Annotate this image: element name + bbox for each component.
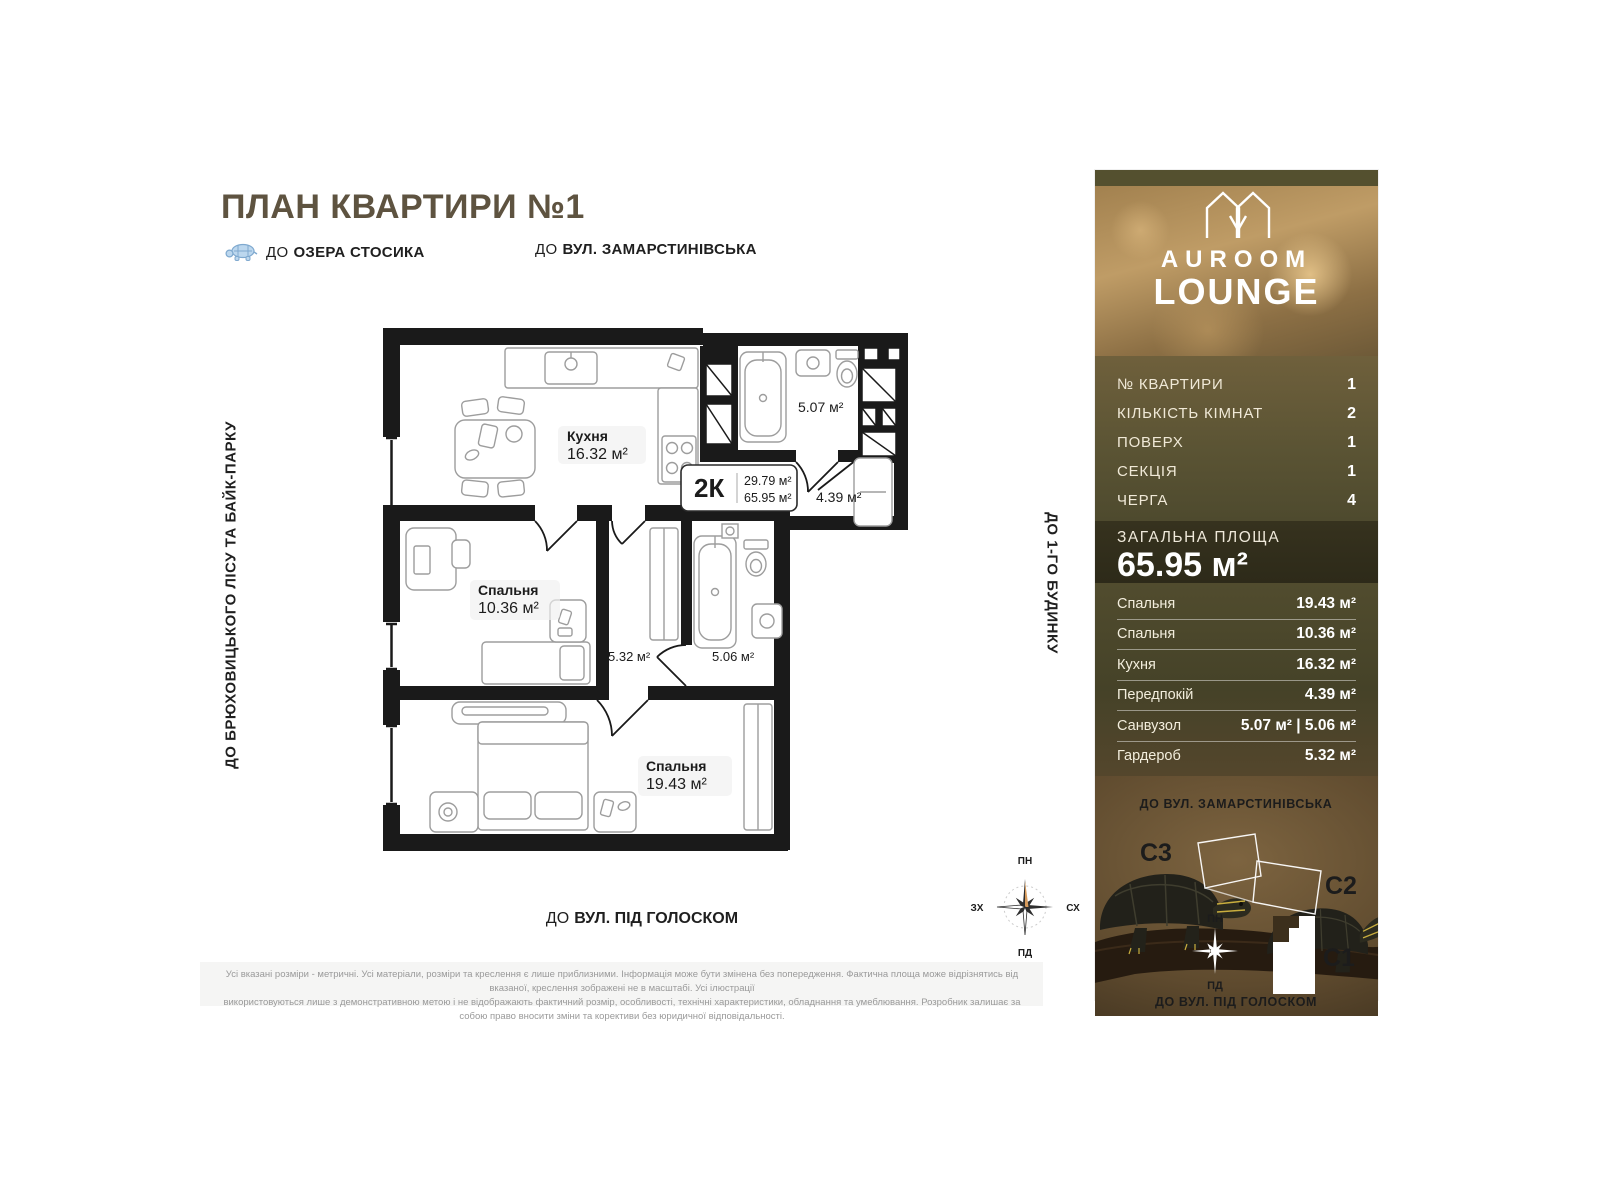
landmark-lake-name: ОЗЕРА СТОСИКА (293, 244, 424, 261)
landmark-top-name: ВУЛ. ЗАМАРСТИНІВСЬКА (562, 241, 756, 258)
panel-header: AUROOM LOUNGE (1095, 186, 1378, 356)
room-row: Передпокій4.39 м² (1117, 681, 1356, 712)
room-label: Спальня (1117, 626, 1175, 642)
bath-mid-area: 5.06 м² (712, 649, 755, 664)
compass-east-label: СХ (1066, 903, 1080, 914)
wardrobe-area: 5.32 м² (608, 649, 651, 664)
section-c3-label: С3 (1140, 839, 1172, 867)
wardrobe-furniture (650, 528, 678, 640)
landmark-street-bottom: ДОВУЛ. ПІД ГОЛОСКОМ (546, 910, 738, 928)
landmark-top-prefix: ДО (535, 241, 557, 258)
room-row: Гардероб5.32 м² (1117, 742, 1356, 772)
turtle-icon (224, 241, 258, 263)
room-row: Кухня16.32 м² (1117, 650, 1356, 681)
page-title: ПЛАН КВАРТИРИ №1 (221, 188, 585, 227)
room-label: Гардероб (1117, 748, 1181, 764)
apartment-type: 2К (694, 473, 724, 503)
total-area-block: ЗАГАЛЬНА ПЛОЩА 65.95 м² (1095, 521, 1378, 583)
room-row: Санвузол5.07 м² | 5.06 м² (1117, 711, 1356, 742)
detail-value: 4 (1347, 492, 1356, 510)
disclaimer: Усі вказані розміри - метричні. Усі мате… (222, 968, 1022, 1024)
detail-row: ЧЕРГА4 (1117, 486, 1356, 515)
compass-north-accent (1025, 881, 1029, 907)
total-area: 65.95 м² (744, 491, 792, 505)
detail-label: ПОВЕРХ (1117, 434, 1184, 451)
bedroom-big-label: Спальня (646, 758, 706, 774)
room-row: Спальня19.43 м² (1117, 589, 1356, 620)
floor-plan: Кухня 16.32 м² Спальня 10.36 м² Спальня … (383, 328, 911, 852)
bathroom-top-furniture (740, 350, 858, 442)
disclaimer-line2: використовуються лише з демонстративною … (222, 996, 1022, 1024)
detail-value: 1 (1347, 434, 1356, 452)
detail-label: СЕКЦІЯ (1117, 463, 1177, 480)
room-row: Спальня10.36 м² (1117, 620, 1356, 651)
compass-rose: ПН ЗХ СХ ПД (965, 850, 1085, 965)
compass-west-label: ЗХ (971, 903, 984, 914)
landmark-street-top: ДОВУЛ. ЗАМАРСТИНІВСЬКА (535, 241, 757, 258)
room-label: Передпокій (1117, 687, 1193, 703)
site-map-scene: ДО ВУЛ. ЗАМАРСТИНІВСЬКА С3 С2 С1 ПН ПД Д… (1095, 776, 1378, 1016)
room-label: Спальня (1117, 596, 1175, 612)
apartment-info-box: 2К 29.79 м² 65.95 м² (681, 465, 797, 511)
detail-value: 2 (1347, 405, 1356, 423)
bedroom-big-area: 19.43 м² (646, 776, 707, 793)
bath-top-area: 5.07 м² (798, 399, 844, 415)
detail-value: 1 (1347, 376, 1356, 394)
bedroom-small-area: 10.36 м² (478, 600, 539, 617)
panel-room-list: Спальня19.43 м² Спальня10.36 м² Кухня16.… (1095, 583, 1378, 776)
map-compass-north: ПН (1207, 913, 1223, 925)
kitchen-label: Кухня (567, 428, 608, 444)
compass-south-half (1023, 907, 1027, 935)
compass-north-label: ПН (1018, 856, 1032, 867)
living-area: 29.79 м² (744, 474, 792, 488)
map-street-bottom: ДО ВУЛ. ПІД ГОЛОСКОМ (1155, 995, 1317, 1009)
total-area-value: 65.95 м² (1117, 547, 1356, 583)
bathroom-mid-furniture (694, 524, 782, 648)
hall-area: 4.39 м² (816, 489, 862, 505)
landmark-left-vertical: ДО БРЮХОВИЦЬКОГО ЛІСУ ТА БАЙК-ПАРКУ (223, 421, 240, 769)
detail-label: КІЛЬКІСТЬ КІМНАТ (1117, 405, 1263, 422)
disclaimer-line1: Усі вказані розміри - метричні. Усі мате… (222, 968, 1022, 996)
brand-name-line2: LOUNGE (1095, 273, 1378, 311)
map-compass-south: ПД (1207, 980, 1223, 992)
info-panel: AUROOM LOUNGE № КВАРТИРИ1 КІЛЬКІСТЬ КІМН… (1095, 170, 1378, 1000)
landmark-lake: ДООЗЕРА СТОСИКА (224, 241, 425, 263)
section-c2-label: С2 (1325, 872, 1357, 900)
landmark-lake-prefix: ДО (266, 244, 288, 261)
compass-west-half (997, 905, 1025, 909)
detail-row: № КВАРТИРИ1 (1117, 370, 1356, 399)
room-value: 19.43 м² (1296, 595, 1356, 613)
room-label: Кухня (1117, 657, 1156, 673)
detail-label: № КВАРТИРИ (1117, 376, 1224, 393)
section-c1-building (1273, 916, 1315, 994)
detail-row: КІЛЬКІСТЬ КІМНАТ2 (1117, 399, 1356, 428)
detail-row: ПОВЕРХ1 (1117, 428, 1356, 457)
room-value: 5.32 м² (1305, 747, 1356, 765)
brand-name-line1: AUROOM (1095, 247, 1378, 273)
section-c1-label: С1 (1323, 944, 1355, 972)
landmark-right-vertical: ДО 1-ГО БУДИНКУ (1044, 512, 1061, 654)
detail-row: СЕКЦІЯ1 (1117, 457, 1356, 486)
detail-value: 1 (1347, 463, 1356, 481)
compass-south-label: ПД (1018, 948, 1032, 959)
landmark-bottom-name: ВУЛ. ПІД ГОЛОСКОМ (574, 910, 738, 927)
kitchen-area: 16.32 м² (567, 446, 628, 463)
map-street-top: ДО ВУЛ. ЗАМАРСТИНІВСЬКА (1140, 797, 1333, 811)
detail-label: ЧЕРГА (1117, 492, 1168, 509)
panel-details: № КВАРТИРИ1 КІЛЬКІСТЬ КІМНАТ2 ПОВЕРХ1 СЕ… (1095, 356, 1378, 521)
room-value: 16.32 м² (1296, 656, 1356, 674)
room-label: Санвузол (1117, 718, 1181, 734)
room-value: 10.36 м² (1296, 625, 1356, 643)
landmark-bottom-prefix: ДО (546, 910, 569, 927)
room-value: 5.07 м² | 5.06 м² (1241, 717, 1356, 735)
bedroom-small-label: Спальня (478, 582, 538, 598)
auroom-logo-icon (1095, 186, 1378, 247)
room-value: 4.39 м² (1305, 686, 1356, 704)
total-area-label: ЗАГАЛЬНА ПЛОЩА (1117, 529, 1356, 547)
kitchen-furniture (455, 348, 698, 497)
